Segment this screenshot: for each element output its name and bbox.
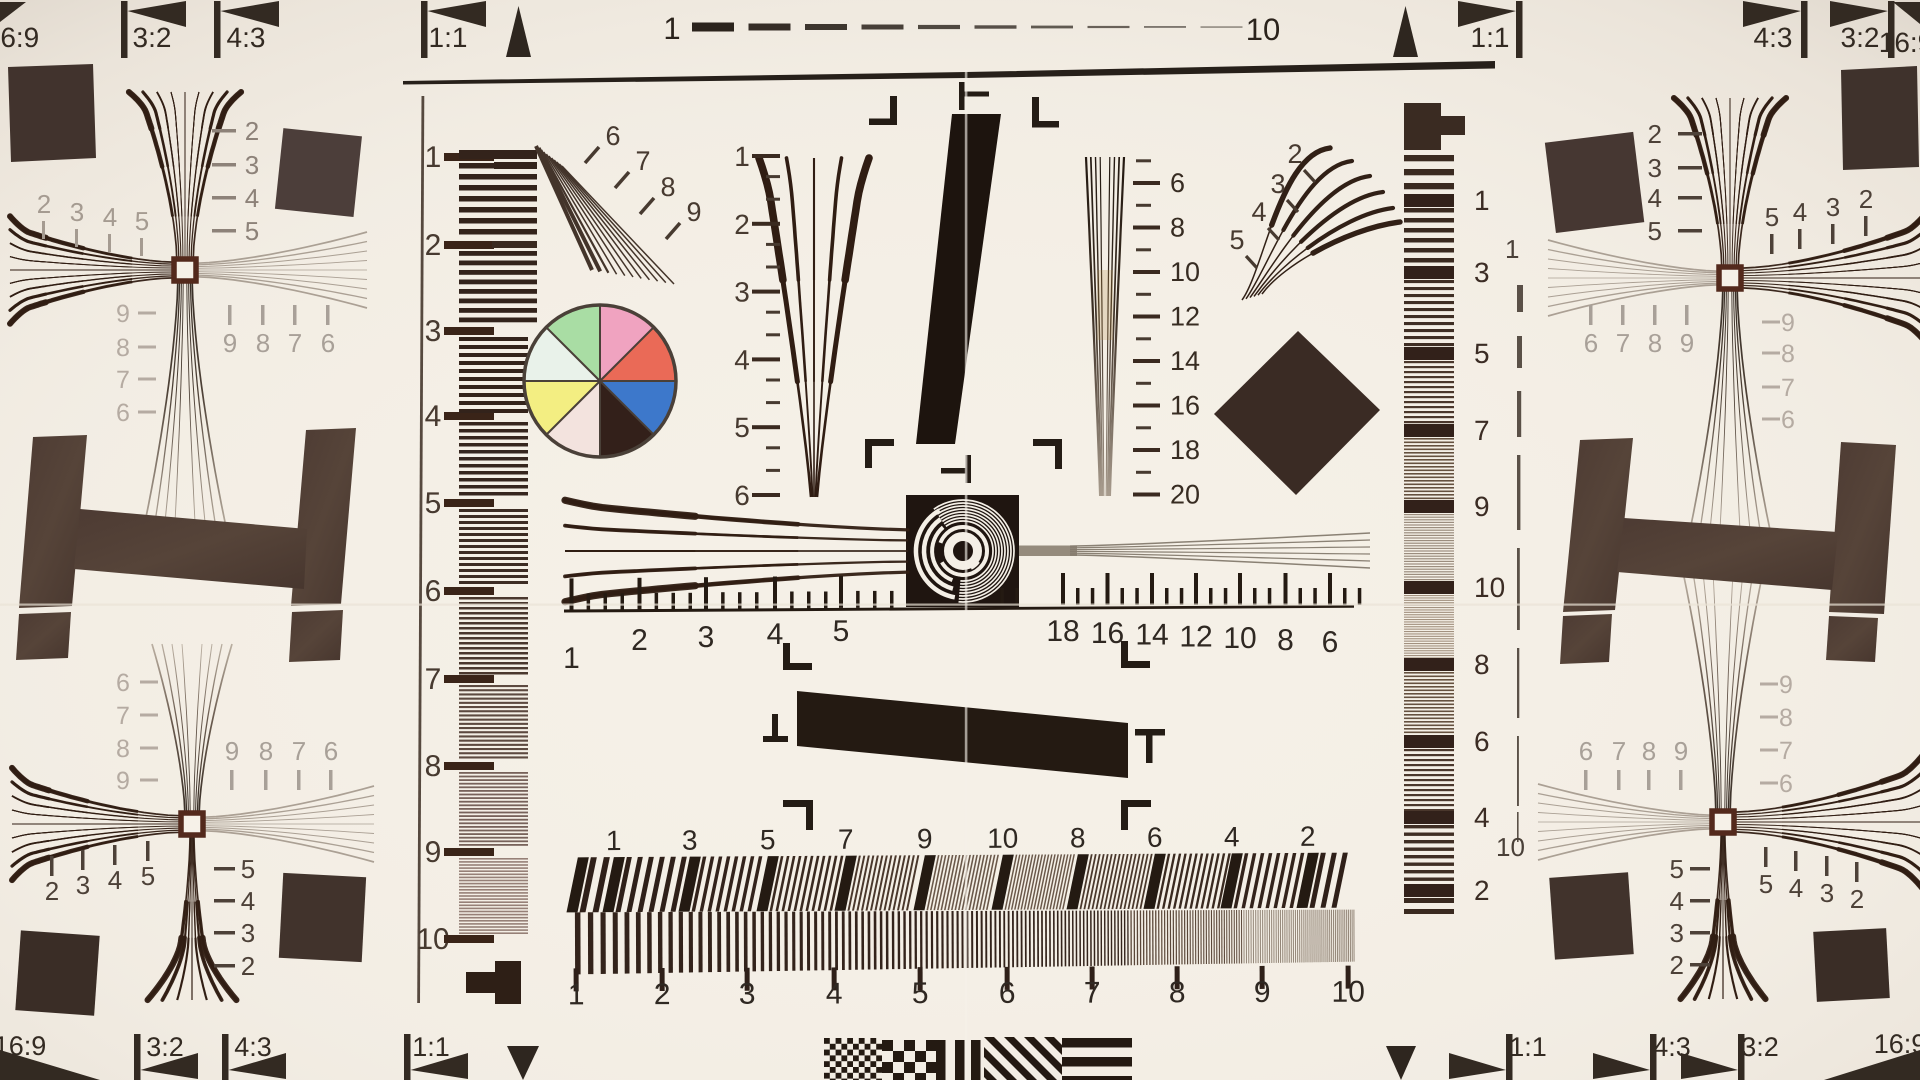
svg-text:7: 7: [635, 146, 650, 176]
svg-text:5: 5: [135, 206, 149, 236]
svg-text:2: 2: [1300, 821, 1316, 852]
svg-text:1:1: 1:1: [1509, 1032, 1547, 1062]
svg-text:18: 18: [1170, 435, 1200, 465]
svg-text:7: 7: [288, 328, 302, 358]
svg-text:1: 1: [563, 642, 580, 675]
svg-text:7: 7: [838, 824, 854, 855]
svg-text:9: 9: [425, 836, 442, 869]
svg-text:2: 2: [734, 209, 750, 240]
svg-text:2: 2: [1648, 119, 1662, 149]
svg-text:2: 2: [1287, 139, 1302, 169]
svg-text:3: 3: [734, 277, 750, 308]
svg-text:8: 8: [116, 334, 130, 362]
svg-text:1: 1: [425, 141, 442, 174]
svg-text:4:3: 4:3: [234, 1032, 272, 1062]
svg-text:6: 6: [116, 399, 130, 427]
svg-text:2: 2: [45, 876, 59, 906]
svg-text:8: 8: [1642, 736, 1656, 766]
svg-text:14: 14: [1170, 346, 1200, 376]
svg-text:6: 6: [1147, 822, 1163, 853]
svg-text:3: 3: [739, 978, 756, 1011]
svg-text:4:3: 4:3: [1754, 22, 1793, 53]
svg-text:9: 9: [1674, 736, 1688, 766]
svg-text:8: 8: [425, 750, 442, 783]
svg-text:14: 14: [1135, 619, 1168, 652]
svg-text:6: 6: [1781, 406, 1795, 434]
svg-text:8: 8: [256, 328, 270, 358]
svg-text:6: 6: [605, 121, 620, 151]
svg-text:18: 18: [1046, 615, 1079, 648]
svg-text:6: 6: [1474, 726, 1490, 757]
svg-text:5: 5: [245, 216, 259, 246]
svg-text:12: 12: [1170, 302, 1200, 332]
svg-text:3: 3: [425, 315, 442, 348]
svg-text:6: 6: [734, 480, 750, 511]
svg-text:9: 9: [1254, 976, 1271, 1009]
svg-text:2: 2: [654, 978, 671, 1011]
svg-text:8: 8: [1648, 328, 1662, 358]
svg-text:5: 5: [1670, 854, 1684, 884]
svg-text:1: 1: [734, 141, 750, 172]
svg-text:9: 9: [686, 197, 701, 227]
svg-text:5: 5: [1759, 869, 1773, 899]
svg-text:5: 5: [833, 615, 850, 648]
svg-text:2: 2: [37, 189, 51, 219]
svg-text:2: 2: [245, 116, 259, 146]
svg-text:4: 4: [767, 618, 784, 651]
svg-text:7: 7: [1779, 737, 1793, 765]
svg-text:3: 3: [70, 197, 84, 227]
svg-text:8: 8: [259, 736, 273, 766]
svg-text:3:2: 3:2: [146, 1032, 184, 1062]
svg-text:7: 7: [1616, 328, 1630, 358]
svg-text:6: 6: [324, 736, 338, 766]
svg-text:6: 6: [1584, 328, 1598, 358]
svg-text:1: 1: [606, 825, 622, 856]
svg-text:7: 7: [1612, 736, 1626, 766]
svg-text:4: 4: [1789, 873, 1803, 903]
svg-text:8: 8: [1070, 822, 1086, 853]
svg-text:16: 16: [1091, 617, 1124, 650]
svg-text:1: 1: [568, 978, 585, 1011]
svg-text:3: 3: [1670, 918, 1684, 948]
svg-text:2: 2: [1670, 950, 1684, 980]
svg-text:9: 9: [1680, 328, 1694, 358]
svg-text:7: 7: [1474, 415, 1490, 446]
svg-text:1:1: 1:1: [429, 22, 468, 53]
svg-text:4: 4: [241, 886, 255, 916]
svg-text:4: 4: [245, 183, 259, 213]
svg-text:6: 6: [425, 575, 442, 608]
svg-text:3: 3: [76, 870, 90, 900]
svg-text:4: 4: [1224, 821, 1240, 852]
svg-text:1: 1: [1474, 185, 1490, 216]
svg-text:16:9: 16:9: [1879, 27, 1920, 58]
svg-text:5: 5: [425, 487, 442, 520]
svg-text:3:2: 3:2: [1841, 22, 1880, 53]
svg-text:6: 6: [1170, 168, 1185, 198]
svg-text:6: 6: [116, 669, 130, 697]
svg-text:10: 10: [1223, 622, 1256, 655]
svg-text:9: 9: [917, 823, 933, 854]
svg-text:9: 9: [225, 736, 239, 766]
svg-text:2: 2: [425, 229, 442, 262]
svg-text:5: 5: [912, 977, 929, 1010]
svg-text:4: 4: [1251, 197, 1266, 227]
svg-text:3: 3: [1648, 153, 1662, 183]
svg-text:4: 4: [1648, 183, 1662, 213]
svg-text:7: 7: [1781, 374, 1795, 402]
svg-text:2: 2: [1859, 184, 1873, 214]
svg-text:5: 5: [1229, 225, 1244, 255]
svg-text:5: 5: [1648, 216, 1662, 246]
svg-text:3:2: 3:2: [133, 22, 172, 53]
svg-text:9: 9: [116, 767, 130, 795]
svg-text:4:3: 4:3: [227, 22, 266, 53]
svg-text:9: 9: [1779, 671, 1793, 699]
svg-text:4: 4: [1793, 197, 1807, 227]
svg-text:1: 1: [663, 11, 680, 46]
svg-text:10: 10: [1474, 572, 1505, 603]
svg-text:7: 7: [116, 702, 130, 730]
svg-text:3:2: 3:2: [1741, 1032, 1779, 1062]
svg-text:5: 5: [760, 824, 776, 855]
svg-text:3: 3: [245, 150, 259, 180]
svg-text:3: 3: [1474, 257, 1490, 288]
svg-text:3: 3: [1270, 169, 1285, 199]
svg-text:3: 3: [241, 918, 255, 948]
svg-text:12: 12: [1179, 620, 1212, 653]
svg-text:4: 4: [826, 977, 843, 1010]
svg-text:2: 2: [1474, 875, 1490, 906]
svg-text:10: 10: [1246, 12, 1280, 47]
svg-text:10: 10: [1170, 257, 1200, 287]
svg-text:10: 10: [1496, 832, 1525, 862]
svg-text:16: 16: [1170, 391, 1200, 421]
svg-text:8: 8: [1779, 704, 1793, 732]
svg-text:8: 8: [116, 735, 130, 763]
svg-text:9: 9: [1474, 491, 1490, 522]
svg-text:4: 4: [425, 400, 442, 433]
svg-text:8: 8: [1474, 649, 1490, 680]
svg-text:9: 9: [1781, 309, 1795, 337]
svg-text:2: 2: [631, 624, 648, 657]
svg-text:16:9: 16:9: [0, 22, 39, 53]
svg-text:1:1: 1:1: [1471, 22, 1510, 53]
svg-text:6: 6: [321, 328, 335, 358]
svg-text:1:1: 1:1: [412, 1032, 450, 1062]
svg-text:4: 4: [103, 202, 117, 232]
svg-text:3: 3: [682, 825, 698, 856]
svg-text:20: 20: [1170, 480, 1200, 510]
svg-text:9: 9: [116, 300, 130, 328]
svg-text:1: 1: [1505, 234, 1519, 264]
svg-text:5: 5: [141, 861, 155, 891]
svg-text:4: 4: [734, 344, 750, 375]
svg-text:7: 7: [425, 663, 442, 696]
svg-text:10: 10: [987, 823, 1018, 854]
svg-text:5: 5: [734, 412, 750, 443]
svg-text:3: 3: [1820, 878, 1834, 908]
svg-text:5: 5: [1765, 202, 1779, 232]
svg-text:6: 6: [999, 977, 1016, 1010]
svg-text:6: 6: [1322, 626, 1339, 659]
svg-text:4: 4: [1670, 886, 1684, 916]
svg-text:8: 8: [1170, 213, 1185, 243]
svg-text:2: 2: [1850, 884, 1864, 914]
svg-text:8: 8: [1781, 340, 1795, 368]
svg-text:2: 2: [241, 951, 255, 981]
svg-text:10: 10: [1331, 976, 1364, 1009]
svg-text:5: 5: [1474, 338, 1490, 369]
svg-text:7: 7: [116, 366, 130, 394]
svg-text:3: 3: [1826, 192, 1840, 222]
svg-text:8: 8: [660, 172, 675, 202]
svg-text:6: 6: [1579, 736, 1593, 766]
svg-text:7: 7: [1084, 977, 1101, 1010]
svg-text:4: 4: [1474, 802, 1490, 833]
svg-text:4: 4: [108, 865, 122, 895]
svg-text:7: 7: [292, 736, 306, 766]
svg-text:3: 3: [698, 621, 715, 654]
svg-text:9: 9: [223, 328, 237, 358]
svg-text:8: 8: [1169, 976, 1186, 1009]
svg-text:5: 5: [241, 854, 255, 884]
svg-text:8: 8: [1277, 624, 1294, 657]
svg-text:6: 6: [1779, 770, 1793, 798]
